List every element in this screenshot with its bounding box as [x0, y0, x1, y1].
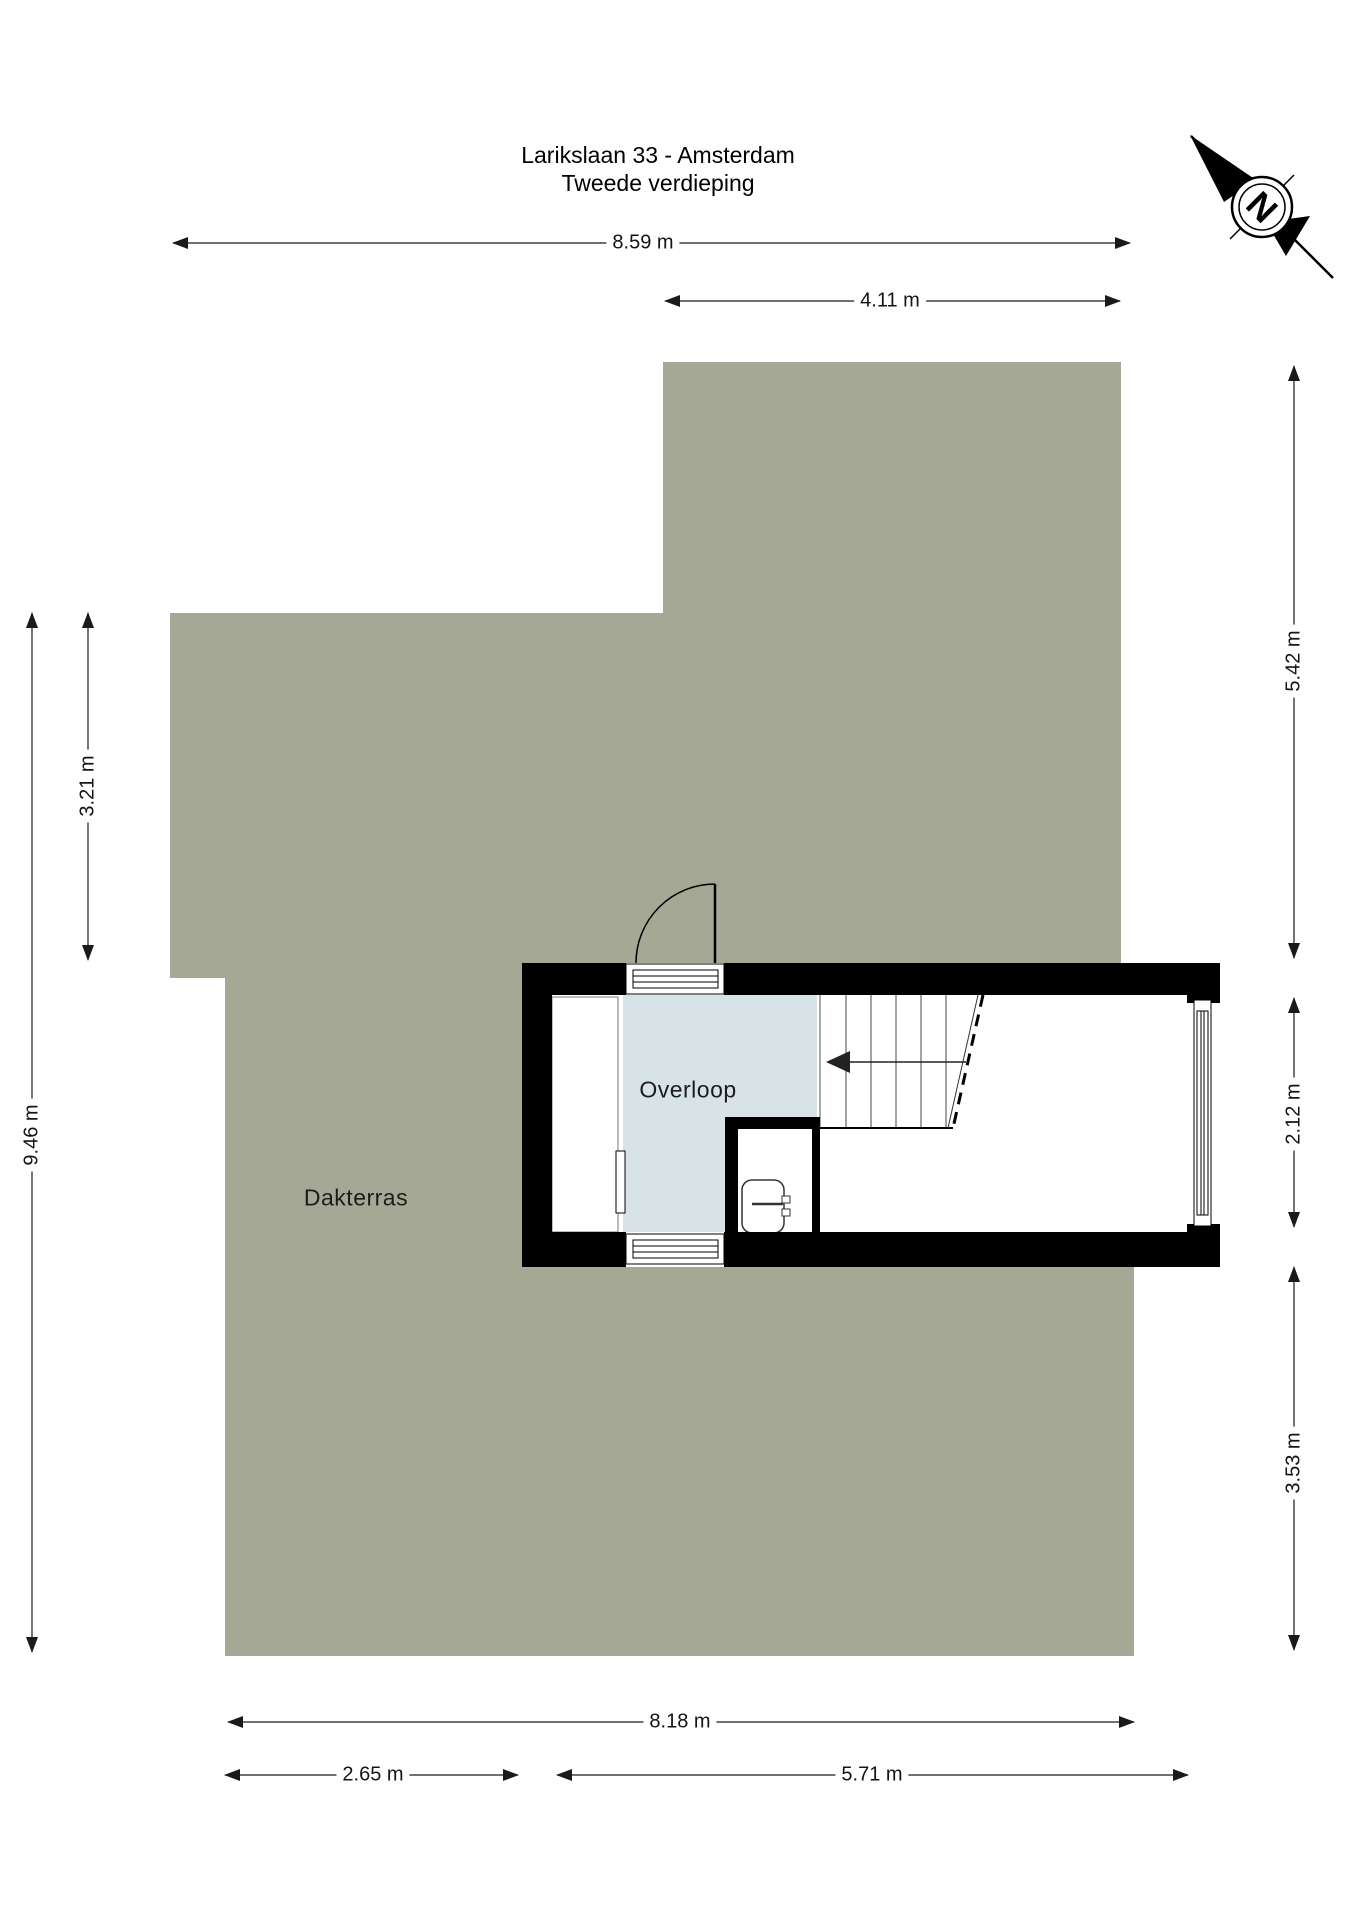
dim-label-left-upper: 3.21 m	[77, 749, 100, 822]
dim-label-bottom-total: 8.18 m	[643, 1711, 716, 1734]
bottom-window	[626, 1234, 724, 1264]
overloop-label: Overloop	[639, 1077, 736, 1104]
sink-icon	[742, 1180, 790, 1233]
dim-label-right-lower: 3.53 m	[1283, 1426, 1306, 1499]
floorplan-page: N Larikslaan 33 - Amsterdam Tweede verdi…	[0, 0, 1358, 1920]
dim-label-top-building: 4.11 m	[854, 290, 926, 313]
terrace-label: Dakterras	[304, 1185, 408, 1212]
dim-label-right-upper: 5.42 m	[1283, 624, 1306, 697]
floor-plan-svg: N	[0, 0, 1358, 1920]
right-window	[1194, 1000, 1211, 1226]
plan-title-line2: Tweede verdieping	[521, 169, 795, 197]
compass-icon: N	[1190, 135, 1333, 278]
plan-title-line1: Larikslaan 33 - Amsterdam	[521, 141, 795, 169]
closet	[552, 997, 618, 1232]
dim-label-left-total: 9.46 m	[21, 1098, 44, 1171]
plan-title: Larikslaan 33 - Amsterdam Tweede verdiep…	[521, 141, 795, 197]
dim-label-top-total: 8.59 m	[606, 232, 679, 255]
dim-label-bottom-right: 5.71 m	[835, 1764, 908, 1787]
closet-door-leaf	[616, 1151, 625, 1213]
dim-label-bottom-left: 2.65 m	[336, 1764, 409, 1787]
dim-label-right-middle: 2.12 m	[1283, 1077, 1306, 1150]
top-door-threshold	[626, 964, 724, 994]
